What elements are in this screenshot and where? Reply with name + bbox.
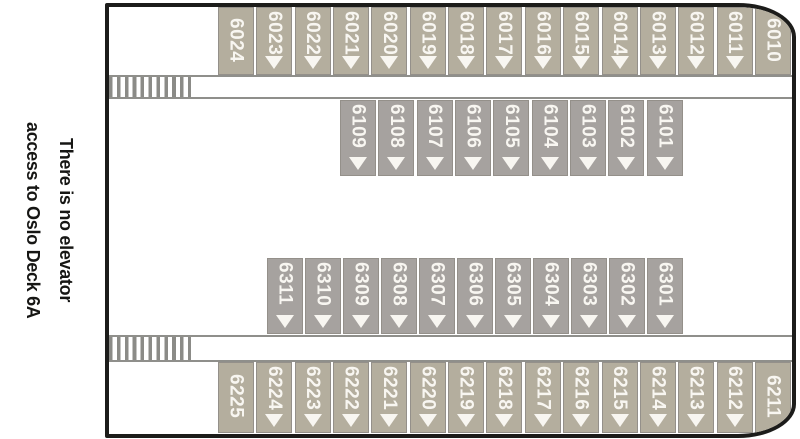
cabin-6217: 6217 (525, 362, 561, 433)
cabin-6015: 6015 (563, 7, 599, 75)
cabin-6010: 6010 (755, 7, 791, 75)
cabin-direction-triangle-icon (390, 315, 408, 328)
cabin-number-label: 6103 (579, 104, 598, 148)
cabin-number-label: 6215 (610, 366, 629, 410)
cabin-direction-triangle-icon (611, 414, 629, 427)
cabin-number-label: 6306 (466, 262, 485, 306)
cabin-6011: 6011 (717, 7, 753, 75)
cabin-6216: 6216 (563, 362, 599, 433)
cabin-number-label: 6308 (390, 262, 409, 306)
cabin-6104: 6104 (532, 100, 568, 176)
cabin-direction-triangle-icon (457, 414, 475, 427)
cabin-direction-triangle-icon (542, 315, 560, 328)
cabin-direction-triangle-icon (656, 157, 674, 170)
cabin-6309: 6309 (343, 258, 379, 334)
cabin-6017: 6017 (486, 7, 522, 75)
cabin-number-label: 6106 (464, 104, 483, 148)
cabin-direction-triangle-icon (541, 157, 559, 170)
cabin-number-label: 6225 (227, 374, 246, 418)
cabin-6221: 6221 (371, 362, 407, 433)
cabin-6308: 6308 (381, 258, 417, 334)
cabin-number-label: 6024 (227, 18, 246, 62)
cabin-number-label: 6224 (265, 366, 284, 410)
cabin-number-label: 6019 (418, 11, 437, 55)
cabin-6301: 6301 (647, 258, 683, 334)
cabin-direction-triangle-icon (618, 315, 636, 328)
cabin-6012: 6012 (678, 7, 714, 75)
cabin-number-label: 6309 (352, 262, 371, 306)
cabin-6016: 6016 (525, 7, 561, 75)
cabin-number-label: 6023 (265, 11, 284, 55)
cabin-6303: 6303 (571, 258, 607, 334)
cabin-number-label: 6310 (314, 262, 333, 306)
cabin-direction-triangle-icon (342, 56, 360, 69)
cabin-number-label: 6107 (425, 104, 444, 148)
cabin-direction-triangle-icon (304, 56, 322, 69)
cabin-direction-triangle-icon (726, 56, 744, 69)
cabin-6215: 6215 (602, 362, 638, 433)
cabin-direction-triangle-icon (726, 414, 744, 427)
cabin-direction-triangle-icon (419, 56, 437, 69)
cabin-direction-triangle-icon (349, 157, 367, 170)
cabin-direction-triangle-icon (380, 56, 398, 69)
cabin-6306: 6306 (457, 258, 493, 334)
cabin-direction-triangle-icon (580, 315, 598, 328)
cabin-number-label: 6015 (572, 11, 591, 55)
cabin-direction-triangle-icon (276, 315, 294, 328)
cabin-6105: 6105 (493, 100, 529, 176)
cabin-6222: 6222 (333, 362, 369, 433)
deck-plan: There is no elevator access to Oslo Deck… (0, 0, 800, 439)
cabin-6107: 6107 (417, 100, 453, 176)
cabin-number-label: 6301 (656, 262, 675, 306)
cabin-direction-triangle-icon (572, 56, 590, 69)
cabin-direction-triangle-icon (649, 414, 667, 427)
cabin-direction-triangle-icon (495, 56, 513, 69)
cabin-direction-triangle-icon (579, 157, 597, 170)
cabin-6224: 6224 (256, 362, 292, 433)
cabin-number-label: 6012 (687, 11, 706, 55)
staircase-icon (109, 77, 191, 97)
cabin-number-label: 6304 (542, 262, 561, 306)
cabin-number-label: 6104 (540, 104, 559, 148)
cabin-direction-triangle-icon (534, 56, 552, 69)
cabin-number-label: 6213 (687, 366, 706, 410)
cabin-number-label: 6305 (504, 262, 523, 306)
cabin-direction-triangle-icon (464, 157, 482, 170)
cabin-direction-triangle-icon (426, 157, 444, 170)
cabin-number-label: 6018 (457, 11, 476, 55)
cabin-6109: 6109 (340, 100, 376, 176)
deck-note-line2: access to Oslo Deck 6A (16, 114, 49, 326)
cabin-6021: 6021 (333, 7, 369, 75)
cabin-direction-triangle-icon (656, 315, 674, 328)
cabin-number-label: 6221 (380, 366, 399, 410)
cabin-direction-triangle-icon (649, 56, 667, 69)
cabin-number-label: 6108 (387, 104, 406, 148)
cabin-direction-triangle-icon (617, 157, 635, 170)
deck-note: There is no elevator access to Oslo Deck… (14, 114, 82, 326)
cabin-direction-triangle-icon (342, 414, 360, 427)
cabin-number-label: 6223 (303, 366, 322, 410)
cabin-6023: 6023 (256, 7, 292, 75)
cabin-number-label: 6220 (418, 366, 437, 410)
cabin-direction-triangle-icon (457, 56, 475, 69)
cabin-number-label: 6022 (303, 11, 322, 55)
cabin-direction-triangle-icon (428, 315, 446, 328)
cabin-direction-triangle-icon (611, 56, 629, 69)
cabin-6014: 6014 (602, 7, 638, 75)
cabin-number-label: 6016 (533, 11, 552, 55)
cabin-direction-triangle-icon (265, 414, 283, 427)
cabin-number-label: 6307 (428, 262, 447, 306)
cabin-number-label: 6020 (380, 11, 399, 55)
cabin-number-label: 6218 (495, 366, 514, 410)
cabin-number-label: 6013 (648, 11, 667, 55)
cabin-direction-triangle-icon (314, 315, 332, 328)
cabin-6218: 6218 (486, 362, 522, 433)
cabin-direction-triangle-icon (466, 315, 484, 328)
cabin-6101: 6101 (647, 100, 683, 176)
cabin-direction-triangle-icon (352, 315, 370, 328)
cabin-6214: 6214 (640, 362, 676, 433)
cabin-6304: 6304 (533, 258, 569, 334)
cabin-6018: 6018 (448, 7, 484, 75)
cabin-6219: 6219 (448, 362, 484, 433)
cabin-6020: 6020 (371, 7, 407, 75)
cabin-6102: 6102 (608, 100, 644, 176)
cabin-number-label: 6214 (648, 366, 667, 410)
cabin-number-label: 6011 (725, 11, 744, 54)
cabin-6310: 6310 (305, 258, 341, 334)
cabin-direction-triangle-icon (502, 157, 520, 170)
cabin-6103: 6103 (570, 100, 606, 176)
cabin-6013: 6013 (640, 7, 676, 75)
cabin-direction-triangle-icon (687, 56, 705, 69)
cabin-number-label: 6222 (342, 366, 361, 410)
cabin-number-label: 6109 (349, 104, 368, 148)
staircase-icon (109, 337, 191, 360)
cabin-number-label: 6021 (342, 11, 361, 55)
cabin-number-label: 6101 (655, 104, 674, 148)
cabin-direction-triangle-icon (687, 414, 705, 427)
cabin-6212: 6212 (717, 362, 753, 433)
cabin-number-label: 6105 (502, 104, 521, 148)
cabin-6225: 6225 (218, 362, 254, 433)
cabin-number-label: 6217 (533, 366, 552, 410)
cabin-direction-triangle-icon (387, 157, 405, 170)
cabin-number-label: 6303 (580, 262, 599, 306)
cabin-number-label: 6311 (276, 262, 295, 305)
upper-corridor (109, 75, 792, 99)
cabin-number-label: 6211 (763, 375, 782, 418)
cabin-6211: 6211 (755, 362, 791, 433)
cabin-direction-triangle-icon (495, 414, 513, 427)
cabin-6022: 6022 (295, 7, 331, 75)
cabin-number-label: 6102 (617, 104, 636, 148)
cabin-number-label: 6014 (610, 11, 629, 55)
deck-note-line1: There is no elevator (49, 114, 82, 326)
cabin-6302: 6302 (609, 258, 645, 334)
cabin-6213: 6213 (678, 362, 714, 433)
ship-hull-outline: 6024602360226021602060196018601760166015… (105, 3, 796, 438)
cabin-direction-triangle-icon (419, 414, 437, 427)
cabin-number-label: 6302 (618, 262, 637, 306)
cabin-6311: 6311 (267, 258, 303, 334)
cabin-6307: 6307 (419, 258, 455, 334)
cabin-number-label: 6216 (572, 366, 591, 410)
cabin-6019: 6019 (410, 7, 446, 75)
cabin-6220: 6220 (410, 362, 446, 433)
cabin-6305: 6305 (495, 258, 531, 334)
cabin-direction-triangle-icon (380, 414, 398, 427)
cabin-number-label: 6017 (495, 11, 514, 55)
cabin-number-label: 6219 (457, 366, 476, 410)
cabin-number-label: 6010 (763, 18, 782, 62)
cabin-direction-triangle-icon (572, 414, 590, 427)
cabin-direction-triangle-icon (504, 315, 522, 328)
cabin-6106: 6106 (455, 100, 491, 176)
cabin-6223: 6223 (295, 362, 331, 433)
cabin-direction-triangle-icon (304, 414, 322, 427)
cabin-6024: 6024 (218, 7, 254, 75)
cabin-direction-triangle-icon (534, 414, 552, 427)
cabin-6108: 6108 (378, 100, 414, 176)
cabin-number-label: 6212 (725, 366, 744, 410)
lower-corridor (109, 335, 792, 362)
cabin-direction-triangle-icon (265, 56, 283, 69)
